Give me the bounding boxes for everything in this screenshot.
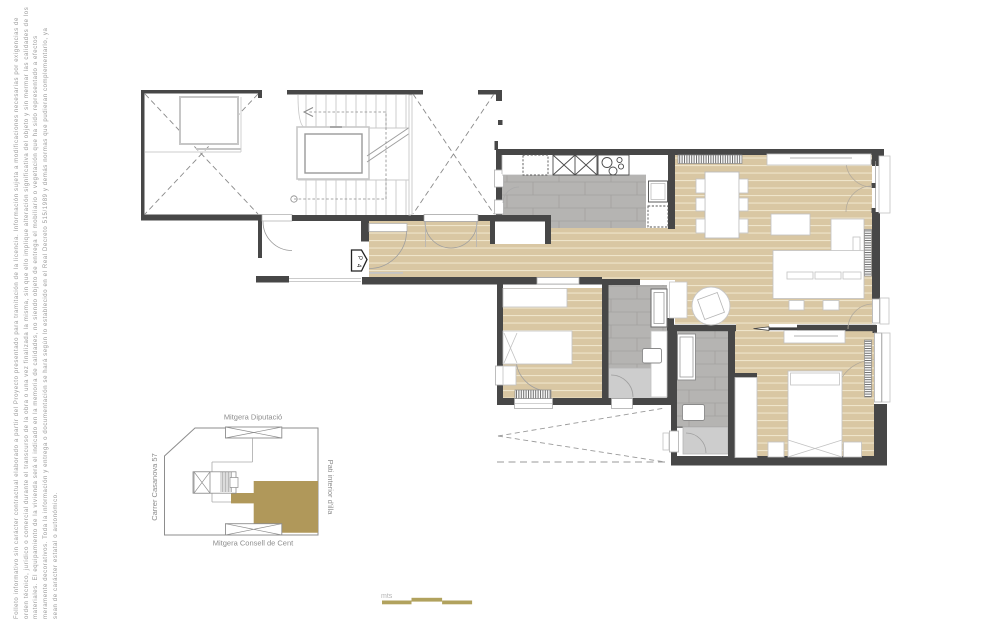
svg-text:Carrer Casanova 57: Carrer Casanova 57 — [150, 453, 159, 521]
svg-text:Pati interior d'illa: Pati interior d'illa — [326, 460, 335, 516]
svg-text:P: P — [356, 256, 362, 260]
svg-text:Mitgera Diputació: Mitgera Diputació — [224, 413, 282, 422]
svg-text:Mitgera Consell de Cent: Mitgera Consell de Cent — [213, 539, 294, 548]
svg-text:mts: mts — [381, 593, 393, 600]
